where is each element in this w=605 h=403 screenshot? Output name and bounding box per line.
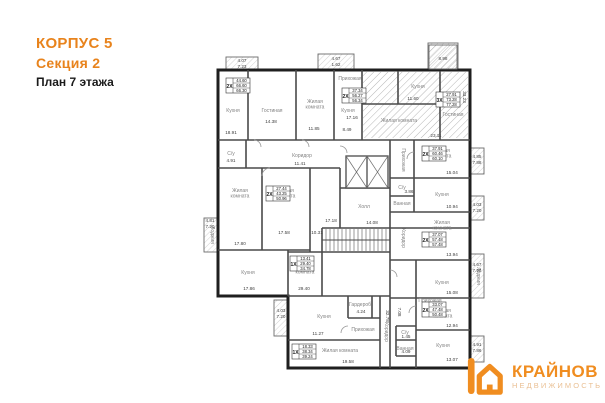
dimension-value: 8.49 xyxy=(343,127,352,132)
dimension-value: 10.31 xyxy=(311,230,323,235)
stamp-prefix: 3Х xyxy=(436,98,443,104)
apartment-stamp: 1Х18.3338.3439.24 xyxy=(292,344,316,359)
room-label: Ванная xyxy=(393,201,410,207)
stamp-prefix: 2Х xyxy=(342,94,349,100)
dimension-value: 4.85 xyxy=(473,154,482,159)
room-label: Жилая комната xyxy=(381,118,417,124)
dimension-value: 17.18 xyxy=(325,218,337,223)
dimension-value: 19.58 xyxy=(342,359,354,364)
dimension-value: 4.03 xyxy=(277,308,286,313)
brand-logo: КРАЙНОВ НЕДВИЖИМОСТЬ xyxy=(466,355,605,397)
room-label: Кухня xyxy=(435,192,449,198)
stamp-area-value: 34.78 xyxy=(300,266,311,271)
stamp-prefix: 2Х xyxy=(266,192,273,198)
page: КОРПУС 5 Секция 2 План 7 этажа xyxy=(0,0,605,403)
dimension-value: 4.91 xyxy=(227,158,236,163)
dimension-value: 8.98 xyxy=(439,56,448,61)
dimension-value: 33.23 xyxy=(462,91,467,103)
apartment-stamp: 2Х44.6066.6066.30 xyxy=(226,78,250,93)
room-label: Жилаякомната xyxy=(306,99,325,111)
dimension-value: 11.27 xyxy=(312,331,324,336)
dimension-value: 3.86 xyxy=(405,189,414,194)
dimension-value: 17.58 xyxy=(278,230,290,235)
stamp-area-value: 66.30 xyxy=(236,88,247,93)
room-label: Кухня xyxy=(341,108,355,114)
room-label: Кухня xyxy=(435,280,449,286)
logo-k-house-icon xyxy=(466,355,504,397)
apartment-stamp: 2Х37.3456.2756.34 xyxy=(342,88,366,103)
stamp-prefix: 2Х xyxy=(422,308,429,314)
apartment-stamp: 2Х37.0757.4857.48 xyxy=(422,232,446,247)
dimension-value: 7.96 xyxy=(473,268,482,273)
dimension-value: 7.20 xyxy=(473,208,482,213)
room-label: Кухня xyxy=(317,314,331,320)
dimension-value: 4.24 xyxy=(357,309,366,314)
dimension-value: 29.40 xyxy=(298,286,310,291)
dimension-value: 4.81 xyxy=(206,218,215,223)
room-label: Холл xyxy=(358,204,370,210)
stamp-area-value: 50.48 xyxy=(432,312,443,317)
dimension-value: 7.08 xyxy=(397,308,402,317)
stamp-area-value: 50.96 xyxy=(276,196,287,201)
dimension-value: 4.91 xyxy=(473,342,482,347)
dimension-value: 10.94 xyxy=(446,204,458,209)
dimension-value: 23.11 xyxy=(430,133,442,138)
dimension-value: 7.20 xyxy=(277,314,286,319)
elevator-shafts xyxy=(346,156,388,188)
apartment-stamp: 3Х27.9173.2877.28 xyxy=(436,92,460,107)
stamp-area-value: 77.28 xyxy=(446,102,457,107)
dimension-value: 14.08 xyxy=(366,220,378,225)
apartment-stamp: 2Х37.9160.4660.10 xyxy=(422,146,446,161)
room-label: Жилая комната xyxy=(322,348,358,354)
dimension-value: 17.80 xyxy=(234,241,246,246)
room-label: Гардероб xyxy=(349,302,371,308)
dimension-value: 1.45 xyxy=(402,334,411,339)
room-label: Кухня xyxy=(411,84,425,90)
stamp-area-value: 39.24 xyxy=(302,354,313,359)
room-label: Кухня xyxy=(241,270,255,276)
dimension-value: 4.67 xyxy=(332,56,341,61)
room-label: Жилаякомната xyxy=(231,188,250,200)
dimension-value: 18.91 xyxy=(225,130,237,135)
room-label: Жилаякомната xyxy=(433,220,452,232)
stamp-prefix: 1Х xyxy=(292,350,299,356)
logo-subtitle-text: НЕДВИЖИМОСТЬ xyxy=(512,381,602,390)
apartment-stamp: 2Х33.0747.4850.48 xyxy=(422,302,446,317)
room-label: С/у xyxy=(227,151,235,157)
stamp-prefix: 2Х xyxy=(422,152,429,158)
stamp-prefix: 2Х xyxy=(226,84,233,90)
dimension-value: 14.38 xyxy=(265,119,277,124)
apartment-stamp: 1Х13.4129.4034.78 xyxy=(290,256,314,271)
dimension-value: 7.20 xyxy=(206,224,215,229)
dimension-value: 11.85 xyxy=(308,126,320,131)
dimension-value: 4.03 xyxy=(473,202,482,207)
apartment-stamp: 2Х27.4443.2550.96 xyxy=(266,186,290,201)
room-label: Коридор xyxy=(292,153,312,159)
dimension-value: 12.94 xyxy=(446,323,458,328)
room-label: Прихожая xyxy=(338,76,361,82)
dimension-value: 17.86 xyxy=(243,286,255,291)
dimension-value: 13.94 xyxy=(446,252,458,257)
floor-plan: КухняГостинаяЖилаякомнатаКухняПрихожаяКу… xyxy=(0,0,605,403)
dimension-value: 11.60 xyxy=(407,96,419,101)
dimension-value: 7.88 xyxy=(473,160,482,165)
stamp-prefix: 1Х xyxy=(290,262,297,268)
dimension-value: 1.62 xyxy=(332,62,341,67)
stamp-area-value: 57.48 xyxy=(432,242,443,247)
dimension-value: 13.07 xyxy=(446,357,458,362)
room-label: Коридор xyxy=(383,322,389,342)
stamp-prefix: 2Х xyxy=(422,238,429,244)
dimension-value: 17.16 xyxy=(346,115,358,120)
logo-brand-text: КРАЙНОВ xyxy=(512,363,602,381)
dimension-value: 7.86 xyxy=(473,348,482,353)
dimension-value: 4.67 xyxy=(473,262,482,267)
dimension-value: 4.07 xyxy=(238,58,247,63)
dimension-value: 15.08 xyxy=(446,290,458,295)
stamp-area-value: 56.34 xyxy=(352,98,363,103)
dimension-value: 15.04 xyxy=(446,170,458,175)
stamp-area-value: 60.10 xyxy=(432,156,443,161)
room-label: Прихожая xyxy=(400,148,406,171)
room-label: Кухня xyxy=(226,108,240,114)
room-label: Кухня xyxy=(436,343,450,349)
room-label: Гостиная xyxy=(262,108,283,114)
dimension-value: 11.41 xyxy=(294,161,306,166)
dimension-value: 32.78 xyxy=(385,310,390,322)
room-label: Коридор xyxy=(400,228,406,248)
room-label: Гостиная xyxy=(443,112,464,118)
dimension-value: 4.09 xyxy=(402,349,411,354)
dimension-value: 7.23 xyxy=(238,64,247,69)
room-label: Прихожая xyxy=(351,327,374,333)
